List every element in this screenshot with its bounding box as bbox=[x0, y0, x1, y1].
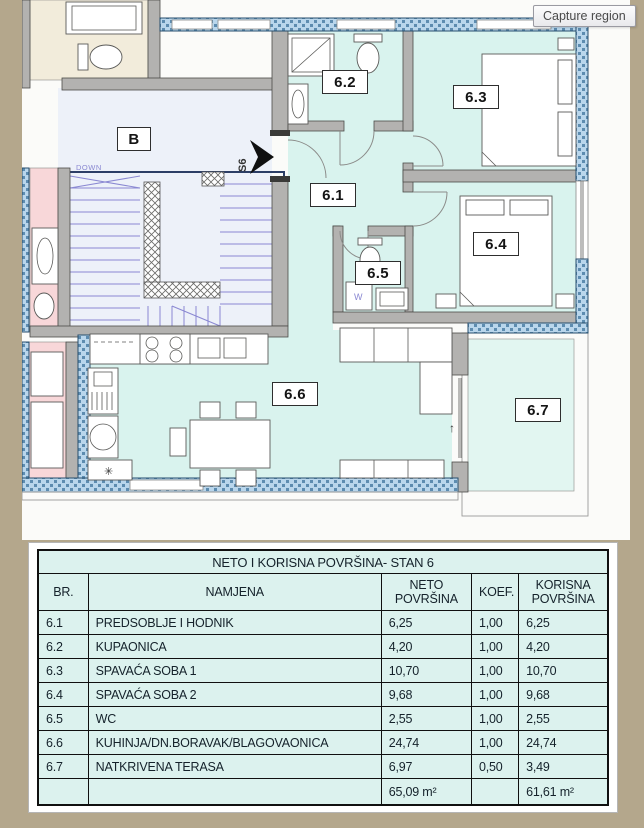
adjacent-furniture bbox=[31, 352, 63, 396]
table-row: 6.2KUPAONICA4,201,004,20 bbox=[38, 635, 608, 659]
stair-core-wall bbox=[202, 172, 224, 186]
pillow bbox=[558, 112, 572, 156]
nightstand bbox=[436, 294, 456, 308]
chair bbox=[236, 402, 256, 418]
totals-row: 65,09 m² 61,61 m² bbox=[38, 779, 608, 806]
total-korisna: 61,61 m² bbox=[519, 779, 608, 806]
stairs-down-label: DOWN bbox=[76, 163, 102, 172]
table-row: 6.4SPAVAĆA SOBA 29,681,009,68 bbox=[38, 683, 608, 707]
wc-toilet-tank bbox=[358, 238, 382, 245]
pillow bbox=[558, 60, 572, 104]
room-label-6-5: 6.5 bbox=[355, 261, 401, 285]
fridge bbox=[88, 368, 118, 414]
adjacent-shower bbox=[66, 2, 142, 34]
stair-core-wall bbox=[144, 182, 160, 286]
stair-core-wall bbox=[144, 282, 220, 298]
room-label-6-7: 6.7 bbox=[515, 398, 561, 422]
area-table-panel: NETO I KORISNA POVRŠINA- STAN 6 BR. NAMJ… bbox=[28, 542, 618, 813]
adjacent-furniture-2 bbox=[31, 402, 63, 468]
capture-region-tooltip: Capture region bbox=[533, 5, 636, 27]
adjacent-toilet-2 bbox=[34, 293, 54, 319]
floor-plan: DOWN bbox=[22, 0, 630, 540]
table-body: 6.1PREDSOBLJE I HODNIK6,251,006,256.2KUP… bbox=[38, 611, 608, 779]
kitchen-sink bbox=[88, 416, 118, 458]
toilet bbox=[357, 43, 379, 73]
adjacent-toilet bbox=[90, 45, 122, 69]
terrace-door-arrow-icon: ↑ bbox=[449, 421, 455, 435]
col-koef: KOEF. bbox=[472, 574, 519, 611]
snowflake-icon: ✳ bbox=[104, 466, 113, 478]
table-row: 6.6KUHINJA/DN.BORAVAK/BLAGOVAONICA24,741… bbox=[38, 731, 608, 755]
entrance-marker-label: S6 bbox=[237, 159, 249, 172]
building-label: B bbox=[117, 127, 151, 151]
sofa-chaise bbox=[420, 362, 452, 414]
chair bbox=[236, 470, 256, 486]
table-row: 6.1PREDSOBLJE I HODNIK6,251,006,25 bbox=[38, 611, 608, 635]
col-neto: NETO POVRŠINA bbox=[381, 574, 471, 611]
col-korisna: KORISNA POVRŠINA bbox=[519, 574, 608, 611]
adjacent-toilet-tank bbox=[78, 44, 88, 70]
col-br: BR. bbox=[38, 574, 88, 611]
pillow bbox=[510, 200, 548, 215]
washer-label: W bbox=[354, 292, 363, 302]
room-label-6-4: 6.4 bbox=[473, 232, 519, 256]
total-neto: 65,09 m² bbox=[381, 779, 471, 806]
sideboard bbox=[340, 460, 444, 478]
terrace-glass-door bbox=[459, 378, 461, 458]
room-label-6-3: 6.3 bbox=[453, 85, 499, 109]
room-label-6-6: 6.6 bbox=[272, 382, 318, 406]
table-title: NETO I KORISNA POVRŠINA- STAN 6 bbox=[38, 550, 608, 574]
dining-table bbox=[190, 420, 270, 468]
sofa bbox=[340, 328, 452, 362]
room-label-6-1: 6.1 bbox=[310, 183, 356, 207]
nightstand bbox=[556, 294, 574, 308]
table-row: 6.3SPAVAĆA SOBA 110,701,0010,70 bbox=[38, 659, 608, 683]
nightstand bbox=[558, 38, 574, 50]
col-namjena: NAMJENA bbox=[88, 574, 381, 611]
toilet-tank bbox=[354, 34, 382, 42]
table-row: 6.5WC2,551,002,55 bbox=[38, 707, 608, 731]
room-label-6-2: 6.2 bbox=[322, 70, 368, 94]
screenshot-stage: DOWN bbox=[0, 0, 644, 828]
adjacent-sink bbox=[32, 228, 58, 284]
table-header-row: BR. NAMJENA NETO POVRŠINA KOEF. KORISNA … bbox=[38, 574, 608, 611]
chair bbox=[200, 470, 220, 486]
wc-sink bbox=[376, 288, 408, 310]
chair bbox=[170, 428, 186, 456]
chair bbox=[200, 402, 220, 418]
table-row: 6.7NATKRIVENA TERASA6,970,503,49 bbox=[38, 755, 608, 779]
pillow bbox=[466, 200, 504, 215]
area-table: NETO I KORISNA POVRŠINA- STAN 6 BR. NAMJ… bbox=[37, 549, 609, 806]
table-title-row: NETO I KORISNA POVRŠINA- STAN 6 bbox=[38, 550, 608, 574]
